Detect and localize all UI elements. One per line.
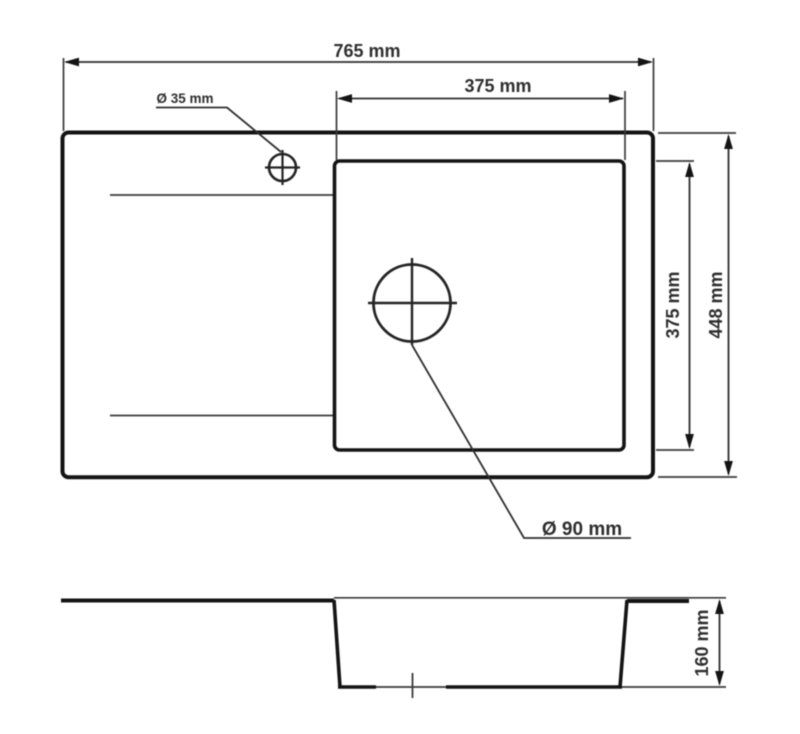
svg-text:160 mm: 160 mm [692,609,712,676]
svg-text:448 mm: 448 mm [706,271,726,338]
svg-text:Ø 90 mm: Ø 90 mm [542,519,622,540]
svg-text:Ø 35 mm: Ø 35 mm [156,91,213,106]
svg-text:375 mm: 375 mm [663,271,683,338]
svg-text:375 mm: 375 mm [464,76,531,96]
svg-text:765 mm: 765 mm [333,41,400,61]
